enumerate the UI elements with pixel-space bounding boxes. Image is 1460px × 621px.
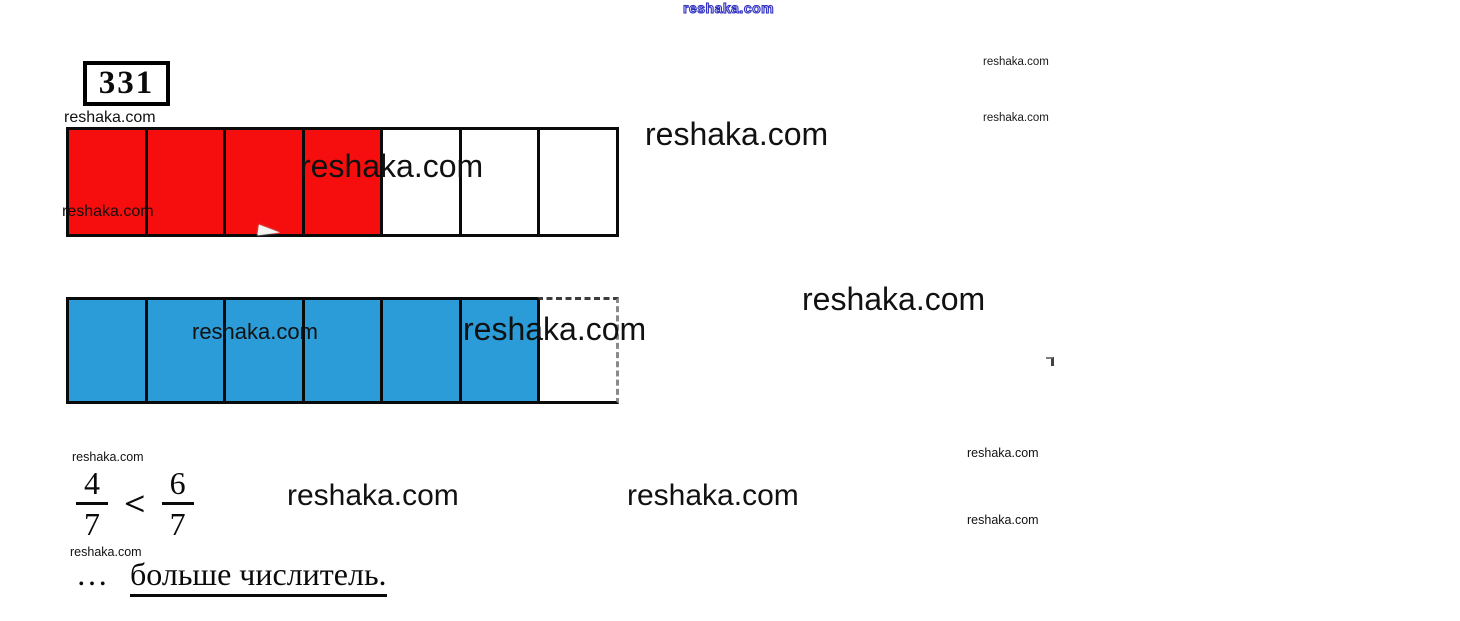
watermark-mid-2: reshaka.com — [627, 479, 799, 512]
watermark-on-red-bar: reshaka.com — [300, 149, 483, 184]
red-bar-segment-3-filled — [223, 127, 302, 237]
red-bar-segment-2-filled — [145, 127, 224, 237]
problem-number-box: 331 — [83, 61, 170, 106]
blue-bar-segment-1-filled — [66, 297, 145, 404]
watermark-in-blue-bar: reshaka.com — [192, 320, 318, 344]
watermark-top-center: reshaka.com — [683, 1, 774, 16]
less-than-sign: < — [122, 484, 148, 524]
watermark-right-1: reshaka.com — [983, 56, 1049, 69]
fraction-right-numerator: 6 — [162, 466, 194, 505]
fraction-left-numerator: 4 — [76, 466, 108, 505]
answer-text-underlined: больше числитель. — [130, 556, 387, 597]
red-bar-segment-7-empty — [537, 127, 619, 237]
fraction-right-denominator: 7 — [170, 505, 186, 541]
watermark-right-4: reshaka.com — [967, 514, 1039, 528]
watermark-right-3: reshaka.com — [967, 447, 1039, 461]
watermark-right-of-red-bar: reshaka.com — [645, 117, 828, 152]
watermark-above-fraction: reshaka.com — [72, 451, 144, 465]
fraction-right: 6 7 — [162, 466, 194, 541]
problem-number: 331 — [99, 65, 155, 102]
answer-ellipsis: … — [76, 556, 112, 592]
watermark-mid-1: reshaka.com — [287, 479, 459, 512]
fraction-left-denominator: 7 — [84, 505, 100, 541]
watermark-under-number: reshaka.com — [64, 109, 156, 127]
watermark-right-2: reshaka.com — [983, 112, 1049, 125]
blue-bar-segment-2-filled — [145, 297, 224, 404]
watermark-over-blue-bar: reshaka.com — [463, 312, 646, 347]
fraction-comparison: 4 7 < 6 7 — [76, 466, 194, 541]
blue-bar-segment-3-filled — [223, 297, 302, 404]
watermark-right-of-blue-bar: reshaka.com — [802, 282, 985, 317]
watermark-red-bar-left: reshaka.com — [62, 203, 154, 221]
stray-mark — [1046, 357, 1054, 366]
fraction-left: 4 7 — [76, 466, 108, 541]
blue-bar-segment-4-filled — [302, 297, 381, 404]
blue-bar-segment-5-filled — [380, 297, 459, 404]
answer-line: …больше числитель. — [76, 556, 387, 593]
